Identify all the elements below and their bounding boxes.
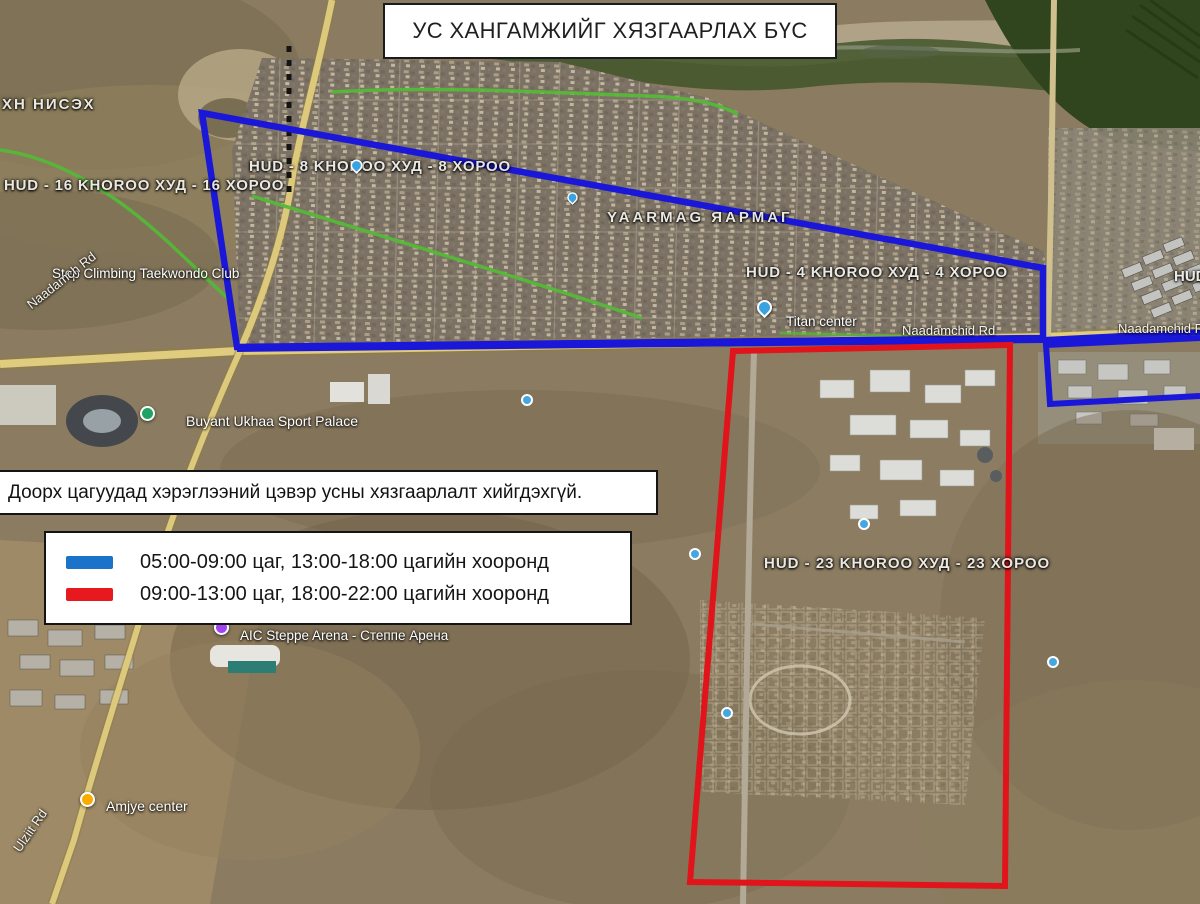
legend-item-blue: 05:00-09:00 цаг, 13:00-18:00 цагийн хоор…	[66, 551, 630, 574]
legend-label-red: 09:00-13:00 цаг, 18:00-22:00 цагийн хоор…	[140, 583, 549, 606]
sport-palace-pin-icon	[140, 406, 155, 421]
map-poster: ХН НИСЭХ HUD - 16 KHOROO ХУД - 16 ХОРОО …	[0, 0, 1200, 904]
legend-swatch-blue	[66, 556, 113, 569]
amjye-center-pin-icon	[80, 792, 95, 807]
page-title: УС ХАНГАМЖИЙГ ХЯЗГААРЛАХ БҮС	[412, 18, 807, 44]
restriction-note: Доорх цагуудад хэрэглээний цэвэр усны хя…	[0, 470, 658, 515]
restriction-note-text: Доорх цагуудад хэрэглээний цэвэр усны хя…	[8, 482, 582, 504]
legend-item-red: 09:00-13:00 цаг, 18:00-22:00 цагийн хоор…	[66, 583, 630, 606]
map-title-banner: УС ХАНГАМЖИЙГ ХЯЗГААРЛАХ БҮС	[383, 3, 837, 59]
legend-label-blue: 05:00-09:00 цаг, 13:00-18:00 цагийн хоор…	[140, 551, 549, 574]
legend-swatch-red	[66, 588, 113, 601]
satellite-map	[0, 0, 1200, 904]
legend-box: 05:00-09:00 цаг, 13:00-18:00 цагийн хоор…	[44, 531, 632, 625]
